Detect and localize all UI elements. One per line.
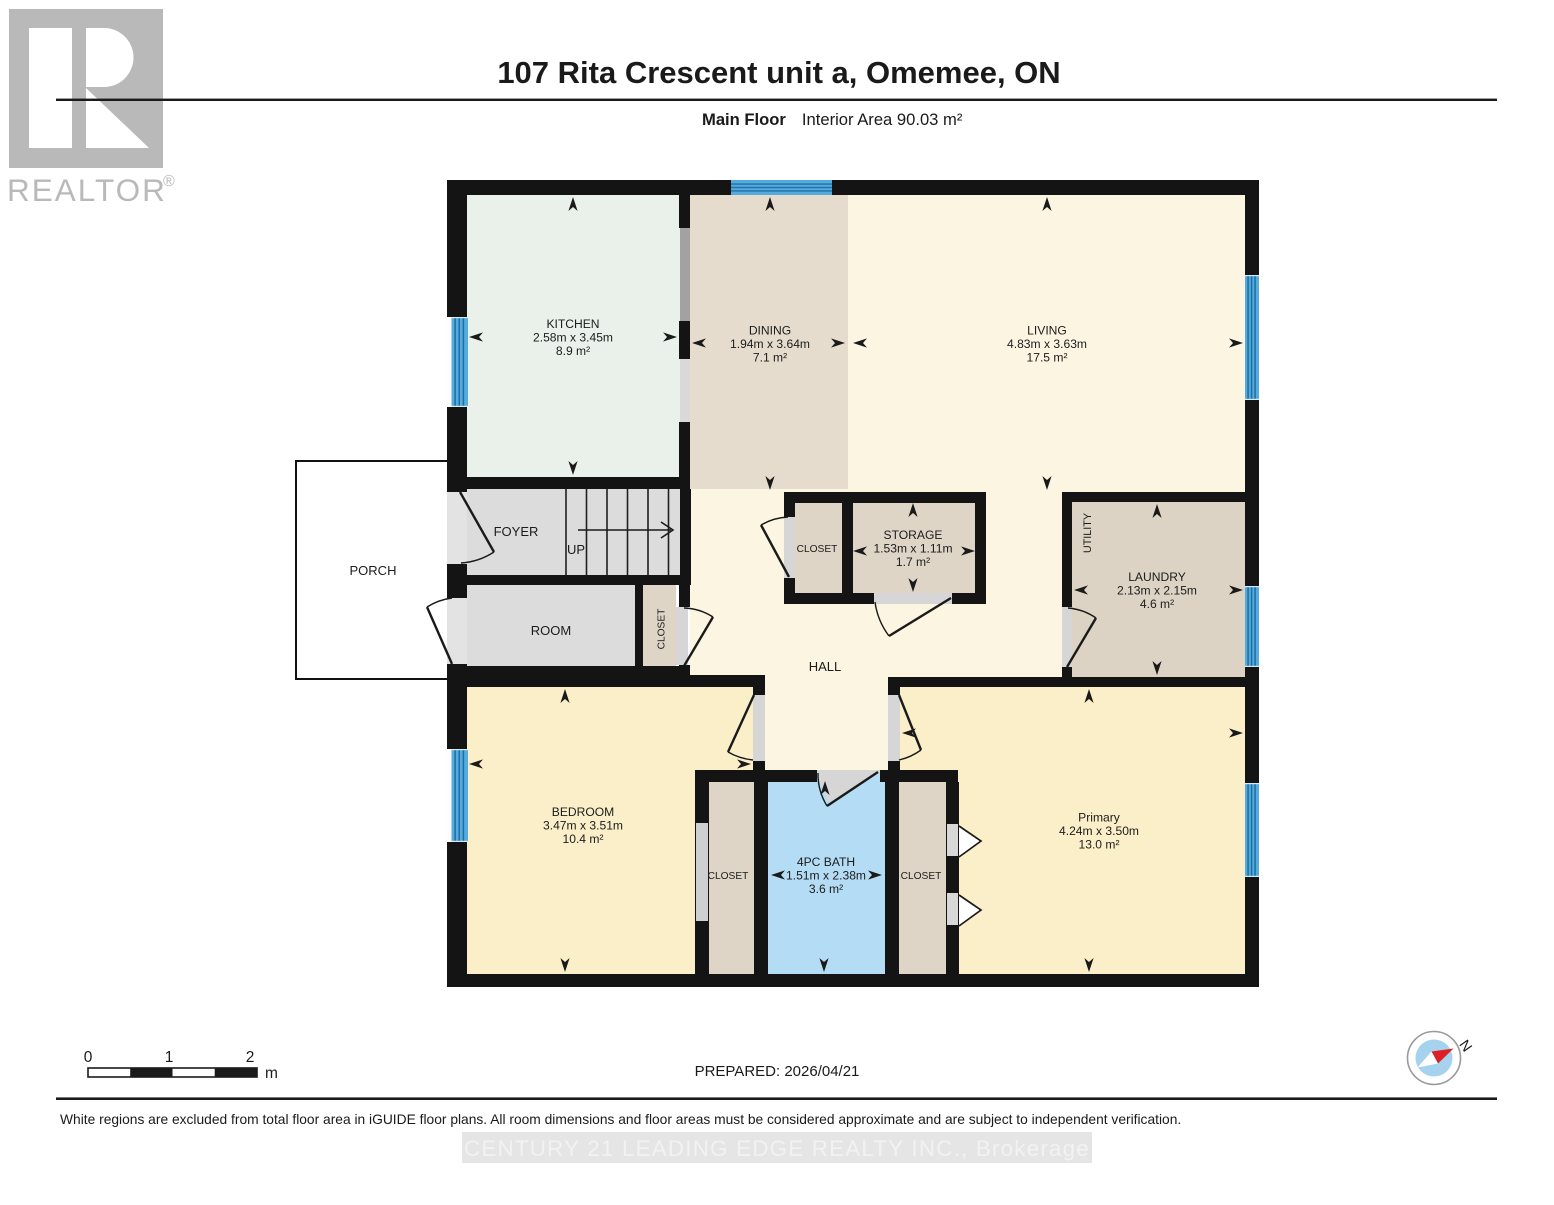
svg-text:ROOM: ROOM <box>531 623 571 638</box>
svg-text:REALTOR: REALTOR <box>7 172 167 208</box>
svg-text:2: 2 <box>246 1049 255 1066</box>
svg-text:107 Rita Crescent unit a, Omem: 107 Rita Crescent unit a, Omemee, ON <box>497 55 1060 90</box>
svg-text:White regions are excluded fro: White regions are excluded from total fl… <box>60 1112 1181 1127</box>
svg-text:UTILITY: UTILITY <box>1082 513 1094 553</box>
svg-text:FOYER: FOYER <box>494 524 539 539</box>
svg-text:PREPARED: 2026/04/21: PREPARED: 2026/04/21 <box>695 1063 860 1080</box>
svg-text:PORCH: PORCH <box>350 563 397 578</box>
svg-text:CLOSET: CLOSET <box>708 871 749 882</box>
svg-text:CLOSET: CLOSET <box>797 544 838 555</box>
svg-text:CLOSET: CLOSET <box>901 871 942 882</box>
svg-text:1: 1 <box>165 1049 174 1066</box>
svg-text:®: ® <box>163 173 175 190</box>
svg-text:UP: UP <box>567 542 585 557</box>
svg-text:CENTURY 21 LEADING EDGE REALTY: CENTURY 21 LEADING EDGE REALTY INC., Bro… <box>464 1136 1090 1161</box>
svg-text:0: 0 <box>84 1049 93 1066</box>
svg-text:m: m <box>265 1065 278 1082</box>
svg-text:Main FloorInterior Area 90.03: Main FloorInterior Area 90.03 m² <box>702 110 963 129</box>
svg-text:CLOSET: CLOSET <box>657 609 668 650</box>
svg-text:HALL: HALL <box>809 659 842 674</box>
